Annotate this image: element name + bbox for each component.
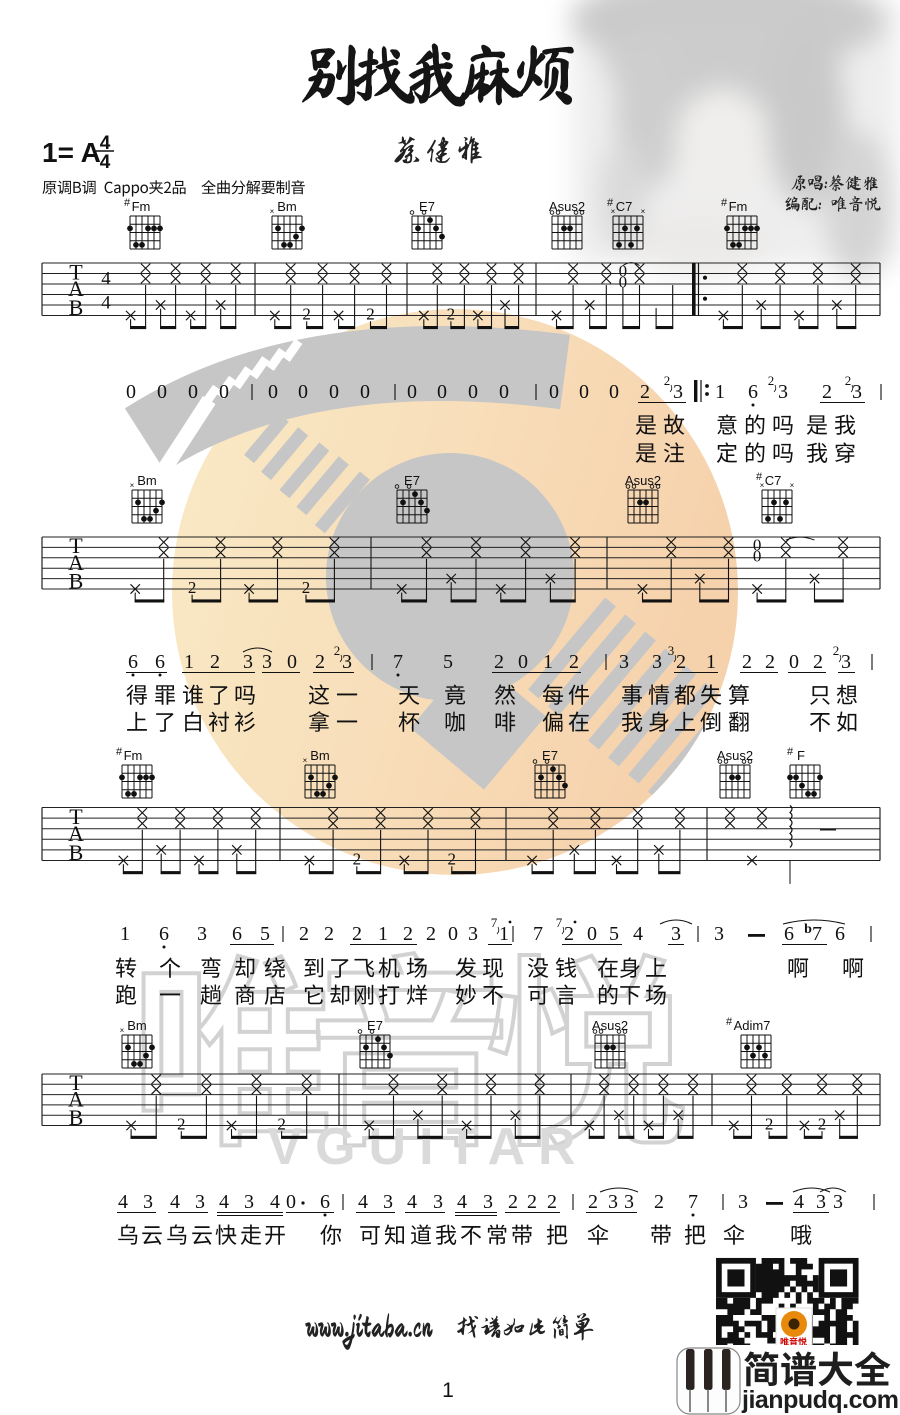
svg-text:3: 3 [852, 381, 862, 403]
svg-text:2: 2 [654, 1191, 664, 1213]
svg-text:Bm: Bm [137, 473, 157, 488]
svg-text:#: # [124, 197, 131, 209]
svg-text:0: 0 [499, 381, 509, 403]
svg-text:Bm: Bm [127, 1018, 147, 1033]
svg-text:3: 3 [195, 1191, 205, 1213]
svg-text:2: 2 [822, 381, 832, 403]
svg-text:3: 3 [673, 381, 683, 403]
svg-text:3: 3 [624, 1191, 634, 1213]
svg-text:1: 1 [715, 381, 725, 403]
svg-text:4: 4 [170, 1191, 180, 1213]
svg-text:Fm: Fm [729, 199, 748, 214]
svg-text:2: 2 [277, 1115, 286, 1134]
svg-text:0: 0 [448, 923, 458, 945]
svg-text:×: × [790, 481, 795, 490]
svg-text:1: 1 [499, 923, 509, 945]
svg-text:#: # [787, 746, 794, 758]
svg-text:×: × [120, 1026, 125, 1035]
svg-text:1: 1 [378, 923, 388, 945]
svg-text:2: 2 [845, 373, 852, 388]
svg-text:×: × [270, 207, 275, 216]
svg-text:5: 5 [609, 923, 619, 945]
svg-text:7: 7 [393, 651, 403, 673]
svg-text:2: 2 [188, 578, 197, 597]
svg-text:b: b [804, 922, 812, 937]
svg-text:C7: C7 [616, 199, 633, 214]
svg-text:2: 2 [210, 651, 220, 673]
svg-text:jianpudq.com: jianpudq.com [741, 1386, 899, 1414]
svg-text:×: × [303, 756, 308, 765]
svg-text:3: 3 [671, 923, 681, 945]
svg-text:2: 2 [447, 305, 456, 324]
svg-text:6: 6 [128, 651, 138, 673]
svg-text:Bm: Bm [310, 748, 330, 763]
svg-text:3: 3 [833, 1191, 843, 1213]
svg-text:3: 3 [619, 651, 629, 673]
svg-text:0: 0 [219, 381, 229, 403]
svg-text:2: 2 [742, 651, 752, 673]
svg-text:1: 1 [543, 651, 553, 673]
svg-text:2: 2 [833, 643, 840, 658]
svg-text:3: 3 [468, 923, 478, 945]
svg-text:B: B [69, 1105, 84, 1130]
svg-text:7: 7 [533, 923, 543, 945]
svg-text:Fm: Fm [132, 199, 151, 214]
svg-text:7: 7 [688, 1191, 698, 1213]
svg-text:VGUITAR: VGUITAR [267, 1118, 588, 1176]
svg-text:2: 2 [818, 1115, 827, 1134]
svg-text:3: 3 [668, 643, 675, 658]
svg-text:2: 2 [676, 651, 686, 673]
svg-text:3: 3 [841, 651, 851, 673]
svg-text:2: 2 [813, 651, 823, 673]
svg-text:0: 0 [188, 381, 198, 403]
svg-text:1: 1 [442, 1379, 454, 1402]
svg-text:F: F [797, 748, 805, 763]
svg-text:C7: C7 [765, 473, 782, 488]
svg-text:0: 0 [549, 381, 559, 403]
svg-text:2: 2 [334, 643, 341, 658]
svg-text:2: 2 [302, 578, 311, 597]
svg-text:3: 3 [433, 1191, 443, 1213]
svg-text:E7: E7 [542, 748, 558, 763]
svg-text:2: 2 [177, 1115, 186, 1134]
svg-text:2: 2 [508, 1191, 518, 1213]
svg-text:2: 2 [640, 381, 650, 403]
svg-text:E7: E7 [404, 473, 420, 488]
svg-text:0: 0 [437, 381, 447, 403]
svg-text:0: 0 [287, 651, 297, 673]
svg-text:4: 4 [100, 152, 111, 173]
svg-text:4: 4 [407, 1191, 417, 1213]
svg-text:2: 2 [547, 1191, 557, 1213]
svg-text:2: 2 [765, 1115, 774, 1134]
svg-text:3: 3 [342, 651, 352, 673]
svg-text:1: 1 [706, 651, 716, 673]
svg-text:4: 4 [101, 269, 111, 290]
svg-text:6: 6 [784, 923, 794, 945]
svg-text:×: × [760, 481, 765, 490]
svg-text:1: 1 [120, 923, 130, 945]
svg-text:0: 0 [609, 381, 619, 403]
svg-text:0: 0 [468, 381, 478, 403]
svg-text:0: 0 [360, 381, 370, 403]
svg-text:E7: E7 [419, 199, 435, 214]
svg-text:Adim7: Adim7 [734, 1018, 771, 1033]
svg-text:1: 1 [184, 651, 194, 673]
svg-text:#: # [721, 197, 728, 209]
svg-text:6: 6 [835, 923, 845, 945]
svg-text:2: 2 [569, 651, 579, 673]
svg-text:3: 3 [652, 651, 662, 673]
svg-text:2: 2 [588, 1191, 598, 1213]
svg-text:B: B [69, 840, 84, 865]
svg-text:4: 4 [633, 923, 643, 945]
svg-text:#: # [726, 1016, 733, 1028]
svg-text:3: 3 [197, 923, 207, 945]
svg-text:7: 7 [556, 915, 563, 930]
svg-text:4: 4 [100, 133, 111, 154]
svg-text:×: × [641, 207, 646, 216]
svg-text:0: 0 [789, 651, 799, 673]
svg-text:3: 3 [383, 1191, 393, 1213]
svg-text:2: 2 [564, 923, 574, 945]
svg-text:0: 0 [329, 381, 339, 403]
svg-text:2: 2 [494, 651, 504, 673]
svg-text:2: 2 [448, 850, 457, 869]
svg-text:2: 2 [768, 373, 775, 388]
svg-text:0: 0 [268, 381, 278, 403]
svg-text:0: 0 [126, 381, 136, 403]
svg-text:0: 0 [587, 923, 597, 945]
svg-text:B: B [69, 568, 84, 593]
svg-text:6: 6 [159, 923, 169, 945]
svg-text:E7: E7 [367, 1018, 383, 1033]
svg-text:3: 3 [262, 651, 272, 673]
svg-text:3: 3 [816, 1191, 826, 1213]
svg-text:3: 3 [714, 923, 724, 945]
svg-text:3: 3 [243, 651, 253, 673]
svg-text:2: 2 [664, 373, 671, 388]
svg-text:0: 0 [157, 381, 167, 403]
svg-text:0: 0 [286, 1191, 296, 1213]
svg-text:3: 3 [738, 1191, 748, 1213]
svg-text:4: 4 [794, 1191, 804, 1213]
svg-text:2: 2 [353, 850, 362, 869]
svg-text:5: 5 [443, 651, 453, 673]
svg-text:×: × [611, 207, 616, 216]
svg-text:7: 7 [812, 923, 822, 945]
svg-text:Asus2: Asus2 [717, 748, 753, 763]
svg-text:4: 4 [457, 1191, 467, 1213]
svg-text:6: 6 [232, 923, 242, 945]
svg-text:Asus2: Asus2 [549, 199, 585, 214]
svg-text:3: 3 [483, 1191, 493, 1213]
svg-text:4: 4 [270, 1191, 280, 1213]
svg-text:Asus2: Asus2 [592, 1018, 628, 1033]
svg-text:0: 0 [518, 651, 528, 673]
svg-text:3: 3 [608, 1191, 618, 1213]
svg-text:1= A: 1= A [42, 137, 101, 168]
svg-text:3: 3 [778, 381, 788, 403]
svg-text:Bm: Bm [277, 199, 297, 214]
svg-text:2: 2 [403, 923, 413, 945]
svg-text:Fm: Fm [124, 748, 143, 763]
svg-text:6: 6 [155, 651, 165, 673]
svg-text:4: 4 [219, 1191, 229, 1213]
svg-text:4: 4 [101, 293, 111, 314]
svg-text:2: 2 [302, 305, 311, 324]
svg-text:3: 3 [143, 1191, 153, 1213]
svg-text:2: 2 [324, 923, 334, 945]
svg-text:0: 0 [407, 381, 417, 403]
svg-text:×: × [130, 481, 135, 490]
svg-text:2: 2 [527, 1191, 537, 1213]
svg-text:5: 5 [260, 923, 270, 945]
svg-text:B: B [69, 295, 84, 320]
svg-text:2: 2 [352, 923, 362, 945]
svg-text:4: 4 [358, 1191, 368, 1213]
svg-text:2: 2 [315, 651, 325, 673]
svg-text:2: 2 [366, 305, 375, 324]
svg-text:2: 2 [765, 651, 775, 673]
svg-text:2: 2 [426, 923, 436, 945]
svg-text:6: 6 [320, 1191, 330, 1213]
svg-text:0: 0 [298, 381, 308, 403]
svg-text:4: 4 [118, 1191, 128, 1213]
svg-text:6: 6 [748, 381, 758, 403]
svg-text:2: 2 [299, 923, 309, 945]
svg-text:#: # [116, 746, 123, 758]
svg-text:0: 0 [753, 546, 762, 565]
svg-text:3: 3 [244, 1191, 254, 1213]
svg-text:0: 0 [579, 381, 589, 403]
svg-text:7: 7 [491, 915, 498, 930]
svg-text:Asus2: Asus2 [625, 473, 661, 488]
